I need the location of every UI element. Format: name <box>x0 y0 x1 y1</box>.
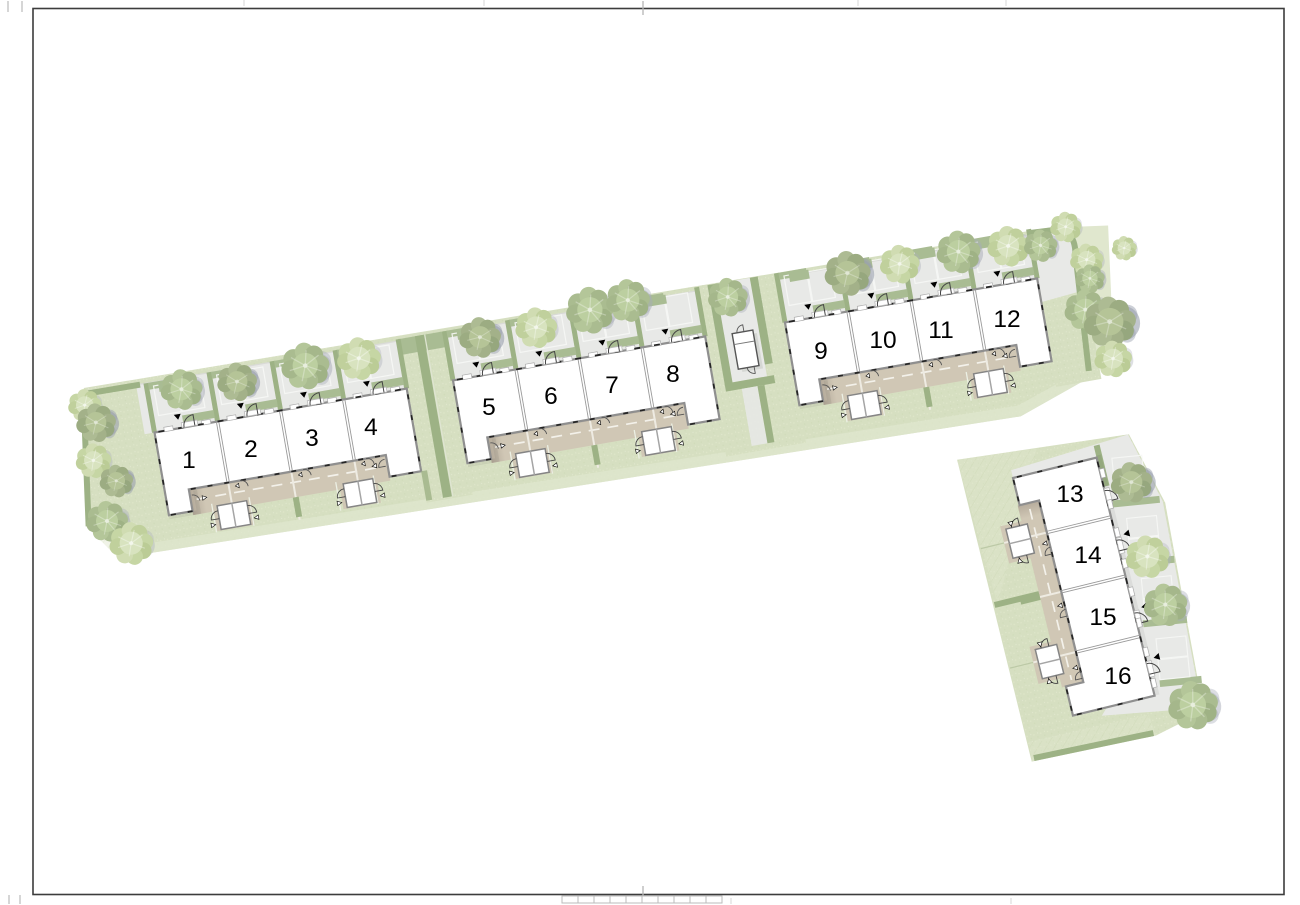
svg-text:9: 9 <box>814 338 828 365</box>
svg-text:1: 1 <box>182 447 196 474</box>
svg-text:12: 12 <box>993 306 1020 333</box>
svg-text:10: 10 <box>869 327 896 354</box>
svg-text:14: 14 <box>1074 542 1101 569</box>
svg-text:13: 13 <box>1056 481 1083 508</box>
svg-text:2: 2 <box>244 436 258 463</box>
svg-text:15: 15 <box>1089 604 1116 631</box>
svg-text:4: 4 <box>364 414 378 441</box>
svg-text:16: 16 <box>1104 663 1131 690</box>
svg-text:11: 11 <box>928 317 953 344</box>
svg-text:6: 6 <box>544 383 558 410</box>
svg-text:7: 7 <box>605 372 619 399</box>
svg-text:3: 3 <box>305 425 319 452</box>
svg-text:5: 5 <box>482 394 496 421</box>
svg-text:8: 8 <box>666 361 680 388</box>
